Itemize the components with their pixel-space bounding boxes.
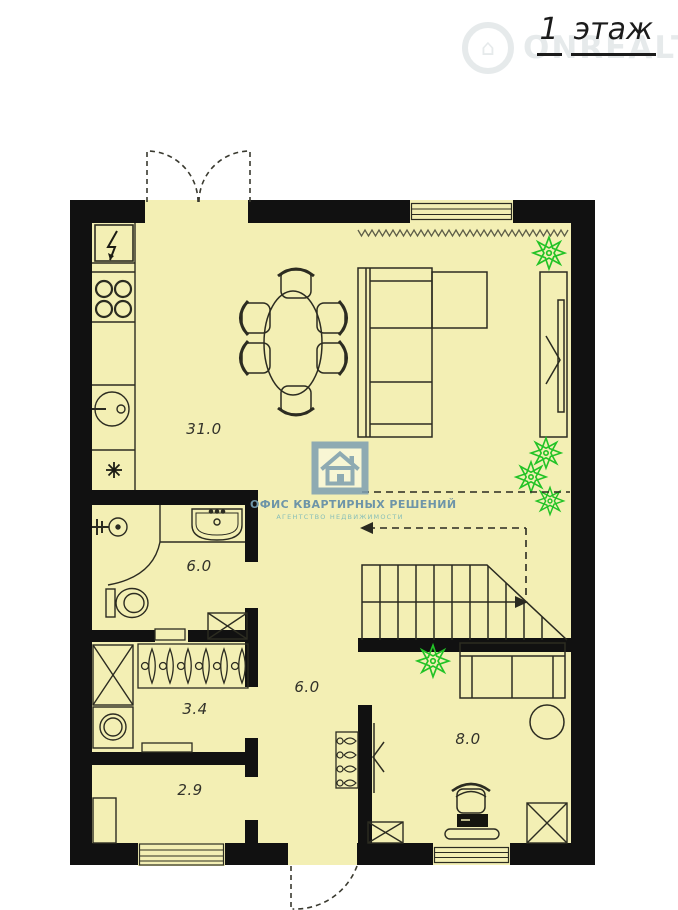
room-area-label-bathroom: 6.0: [186, 557, 211, 575]
agency-logo: ОФИС КВАРТИРНЫХ РЕШЕНИЙ АГЕНТСТВО НЕДВИЖ…: [250, 441, 430, 521]
window-top-icon: [410, 200, 513, 223]
floor-plan-page: ⌂ ONREALT 1этаж ОФИС КВАРТИРНЫХ РЕШЕНИЙ …: [0, 0, 678, 910]
agency-house-icon: [311, 441, 369, 495]
monitor-icon: [457, 814, 488, 827]
room-area-label-kitchen-living: 31.0: [186, 420, 221, 438]
terrace-door-swing-icon: [147, 151, 250, 202]
terrace-door-opening: [145, 200, 248, 223]
room-area-label-entry: 2.9: [177, 781, 202, 799]
back-door-opening: [288, 843, 357, 865]
floor-word: этаж: [571, 12, 656, 56]
room-area-label-dressing-room: 3.4: [182, 700, 207, 718]
back-door-swing-icon: [291, 866, 357, 909]
porch-steps-icon: [138, 843, 225, 866]
room-area-label-study: 8.0: [455, 730, 480, 748]
threshold-bench-icon: [155, 629, 185, 640]
agency-logo-title: ОФИС КВАРТИРНЫХ РЕШЕНИЙ: [250, 498, 430, 511]
watermark-house-icon: ⌂: [462, 22, 514, 74]
room-area-label-hallway: 6.0: [294, 678, 319, 696]
floor-title: 1этаж: [537, 12, 656, 56]
plan-floor: [92, 223, 571, 843]
floor-number: 1: [537, 12, 562, 56]
window-bottom-icon: [433, 843, 510, 865]
agency-logo-subtitle: АГЕНТСТВО НЕДВИЖИМОСТИ: [250, 513, 430, 521]
